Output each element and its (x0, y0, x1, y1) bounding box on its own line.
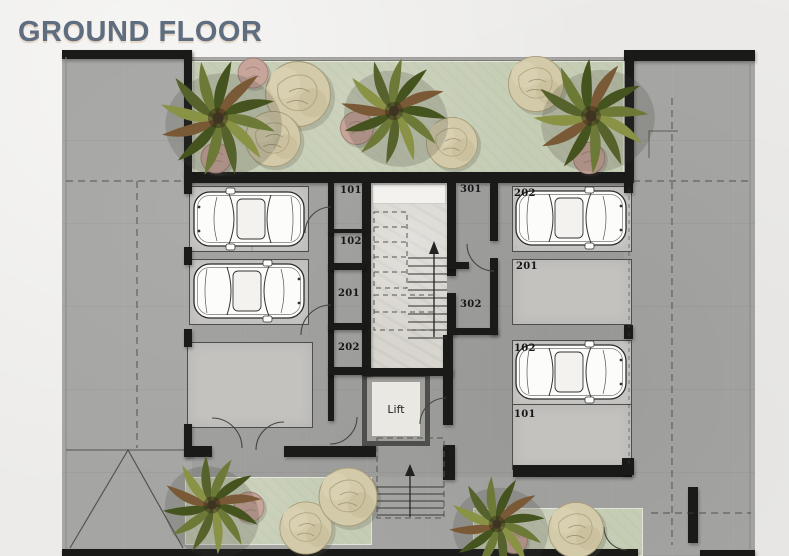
wall-segment (184, 183, 192, 194)
wall-segment (700, 550, 755, 556)
wall-segment (443, 335, 453, 425)
wall-segment (490, 258, 498, 335)
wall-segment (490, 183, 498, 241)
wall-segment (184, 50, 192, 183)
wall-segment (328, 229, 364, 233)
wall-segment (443, 445, 455, 480)
wall-segment (62, 50, 192, 59)
parking-101-label: 101 (514, 409, 536, 420)
wall-segment (624, 183, 633, 193)
wall-segment (624, 325, 633, 339)
wall-segment (624, 50, 755, 61)
top-garden (192, 60, 624, 173)
wall-segment (622, 458, 634, 475)
parking-202-label: 202 (514, 188, 536, 199)
room-201-label: 201 (338, 288, 360, 299)
wall-segment (447, 328, 498, 335)
lift-cab: Lift (372, 382, 420, 436)
room-202-label: 202 (338, 342, 360, 353)
parking-spot-left-1 (189, 186, 309, 252)
parking-spot-left-2 (189, 259, 309, 325)
wall-segment (184, 247, 192, 265)
wall-segment (184, 172, 630, 183)
room-101-label: 101 (340, 185, 362, 196)
parking-201-label: 201 (516, 261, 538, 272)
wall-segment (328, 183, 334, 379)
wall-segment (184, 329, 192, 347)
wall-segment (284, 446, 376, 457)
wall-segment (362, 368, 453, 376)
wall-segment (328, 323, 364, 330)
staircase-shaft (371, 183, 447, 373)
wall-segment (688, 487, 698, 543)
room-302-label: 302 (460, 299, 482, 310)
wall-segment (513, 465, 632, 477)
wall-segment (362, 183, 371, 374)
wall-segment (328, 379, 334, 421)
wall-segment (625, 58, 634, 183)
room-102-label: 102 (340, 236, 362, 247)
page-title: GROUND FLOOR (18, 16, 262, 49)
lift-label: Lift (387, 403, 404, 416)
room-301-label: 301 (460, 184, 482, 195)
parking-spot-left-3 (187, 342, 313, 428)
wall-segment (328, 263, 364, 270)
wall-segment (184, 446, 212, 457)
bottom-garden-left (185, 477, 372, 545)
parking-102-label: 102 (514, 343, 536, 354)
entrance-landing (372, 184, 446, 204)
wall-segment (62, 549, 638, 556)
wall-segment (447, 262, 469, 269)
